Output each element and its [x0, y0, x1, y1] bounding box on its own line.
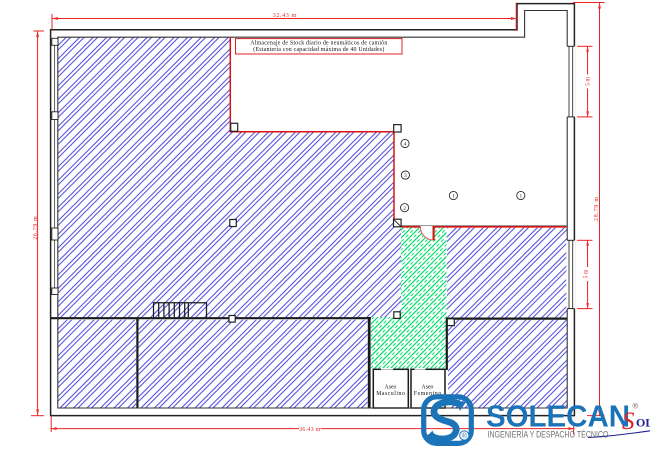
svg-text:OL: OL [636, 416, 650, 430]
svg-text:4: 4 [404, 142, 407, 148]
svg-text:32.43 m: 32.43 m [273, 13, 297, 19]
svg-text:Masculino: Masculino [376, 391, 405, 397]
svg-text:36.43 m: 36.43 m [299, 427, 320, 433]
svg-text:INGENIERÍA Y DESPACHO TÉCNICO: INGENIERÍA Y DESPACHO TÉCNICO [488, 430, 609, 441]
svg-text:5 m: 5 m [585, 77, 591, 86]
svg-text:1: 1 [452, 194, 455, 200]
svg-text:5 m: 5 m [584, 269, 590, 278]
svg-text:SOLECAN: SOLECAN [486, 398, 630, 433]
svg-text:3: 3 [404, 173, 407, 179]
svg-text:(Estantería con capacidad máxi: (Estantería con capacidad máxima de 40 U… [253, 46, 384, 53]
svg-text:Almacenaje de Stock diario de: Almacenaje de Stock diario de neumáticos… [250, 41, 387, 47]
svg-text:1: 1 [519, 194, 522, 200]
svg-text:28.79 m: 28.79 m [594, 197, 600, 221]
svg-text:2: 2 [403, 206, 406, 212]
svg-text:26.79 m: 26.79 m [33, 216, 39, 240]
svg-text:®: ® [462, 432, 468, 440]
svg-text:S: S [622, 408, 635, 435]
svg-text:Aseo: Aseo [422, 384, 434, 390]
svg-text:Aseo: Aseo [385, 384, 397, 390]
